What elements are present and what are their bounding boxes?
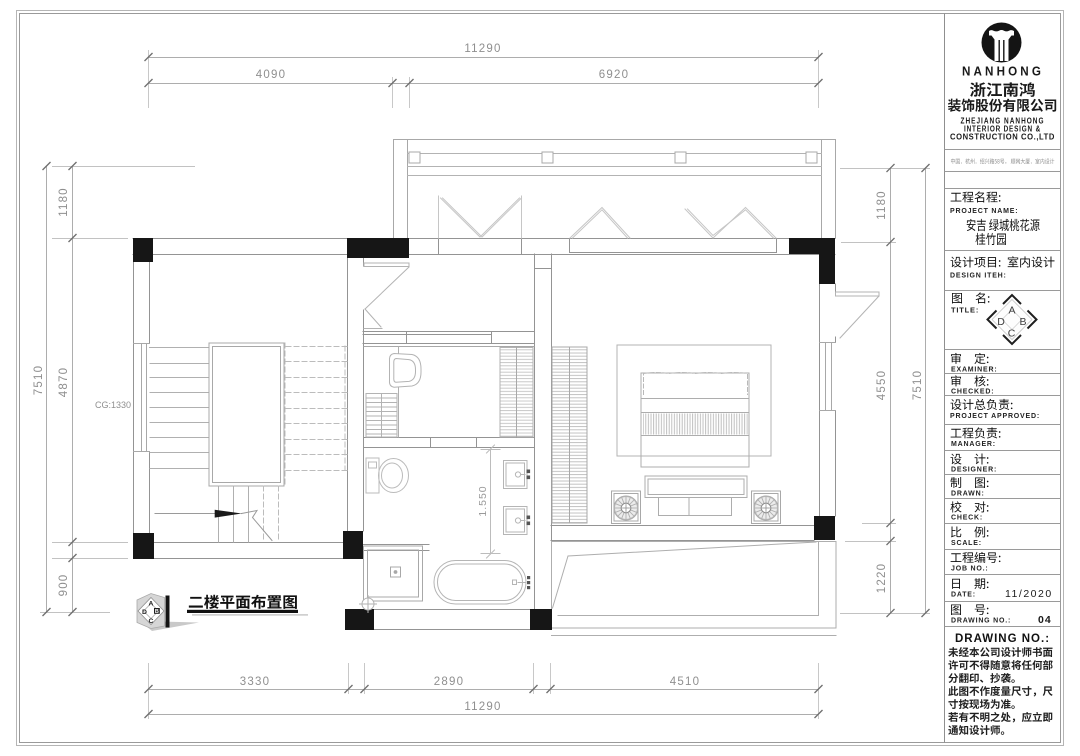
svg-text:11/2020: 11/2020 xyxy=(1005,588,1053,600)
svg-text:JOB NO.:: JOB NO.: xyxy=(951,566,989,573)
svg-text:B: B xyxy=(1019,316,1026,328)
svg-text:PROJECT APPROVED:: PROJECT APPROVED: xyxy=(950,413,1040,420)
svg-text:DESIGN ITEH:: DESIGN ITEH: xyxy=(950,273,1007,280)
svg-text:DRAWING NO.:: DRAWING NO.: xyxy=(955,633,1050,645)
svg-text:4870: 4870 xyxy=(58,367,70,397)
svg-text:11290: 11290 xyxy=(464,43,501,55)
svg-text:DESIGNER:: DESIGNER: xyxy=(951,467,997,474)
svg-text:3330: 3330 xyxy=(240,676,270,688)
svg-text:CHECK:: CHECK: xyxy=(951,515,983,522)
svg-text:A: A xyxy=(1008,305,1015,317)
svg-text:4550: 4550 xyxy=(876,370,888,400)
svg-text:SCALE:: SCALE: xyxy=(951,540,982,547)
svg-text:C: C xyxy=(149,618,154,625)
svg-text:4090: 4090 xyxy=(256,69,286,81)
svg-text:1180: 1180 xyxy=(876,190,888,220)
svg-text:EXAMINER:: EXAMINER: xyxy=(951,367,997,374)
svg-text:04: 04 xyxy=(1038,614,1052,626)
svg-text:1220: 1220 xyxy=(876,563,888,593)
svg-text:NANHONG: NANHONG xyxy=(962,64,1044,79)
svg-text:6920: 6920 xyxy=(599,69,629,81)
svg-text:4510: 4510 xyxy=(670,676,700,688)
svg-text:7510: 7510 xyxy=(33,365,45,395)
svg-text:7510: 7510 xyxy=(912,370,924,400)
svg-text:DATE:: DATE: xyxy=(951,592,976,599)
svg-text:PROJECT NAME:: PROJECT NAME: xyxy=(950,208,1018,215)
svg-text:DRAWN:: DRAWN: xyxy=(951,491,985,498)
svg-text:CHECKED:: CHECKED: xyxy=(951,389,994,396)
svg-text:1.550: 1.550 xyxy=(477,485,489,516)
svg-text:D: D xyxy=(997,316,1005,328)
svg-text:CG:1330: CG:1330 xyxy=(95,400,131,410)
svg-text:B: B xyxy=(155,609,159,615)
svg-text:DRAWING NO.:: DRAWING NO.: xyxy=(951,618,1011,625)
svg-text:11290: 11290 xyxy=(464,701,501,713)
svg-text:TITLE:: TITLE: xyxy=(951,306,979,315)
svg-text:D: D xyxy=(142,609,147,616)
svg-text:C: C xyxy=(1008,328,1016,340)
svg-text:900: 900 xyxy=(58,574,70,597)
svg-text:CONSTRUCTION CO.,LTD: CONSTRUCTION CO.,LTD xyxy=(950,133,1055,142)
svg-text:A: A xyxy=(149,601,154,608)
svg-text:2890: 2890 xyxy=(434,676,464,688)
svg-text:MANAGER:: MANAGER: xyxy=(951,441,996,448)
svg-text:1180: 1180 xyxy=(58,187,70,217)
